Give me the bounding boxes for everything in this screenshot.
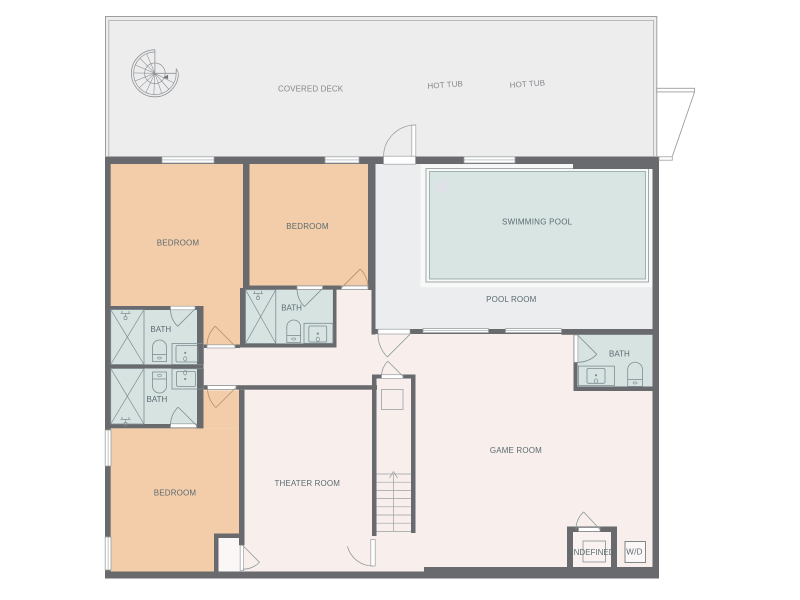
svg-text:UNDEFINED: UNDEFINED bbox=[568, 548, 615, 557]
svg-text:BATH: BATH bbox=[609, 350, 630, 359]
svg-text:THEATER ROOM: THEATER ROOM bbox=[274, 479, 340, 488]
svg-text:BEDROOM: BEDROOM bbox=[157, 238, 200, 247]
svg-text:BEDROOM: BEDROOM bbox=[154, 488, 197, 497]
svg-text:GAME ROOM: GAME ROOM bbox=[490, 446, 542, 455]
svg-text:COVERED DECK: COVERED DECK bbox=[278, 84, 344, 93]
svg-text:BATH: BATH bbox=[147, 395, 168, 404]
svg-text:BATH: BATH bbox=[281, 304, 302, 313]
svg-text:SWIMMING POOL: SWIMMING POOL bbox=[502, 217, 573, 226]
svg-text:BATH: BATH bbox=[150, 325, 171, 334]
svg-text:POOL ROOM: POOL ROOM bbox=[486, 295, 537, 304]
svg-text:BEDROOM: BEDROOM bbox=[286, 222, 329, 231]
svg-text:W/D: W/D bbox=[626, 548, 642, 557]
